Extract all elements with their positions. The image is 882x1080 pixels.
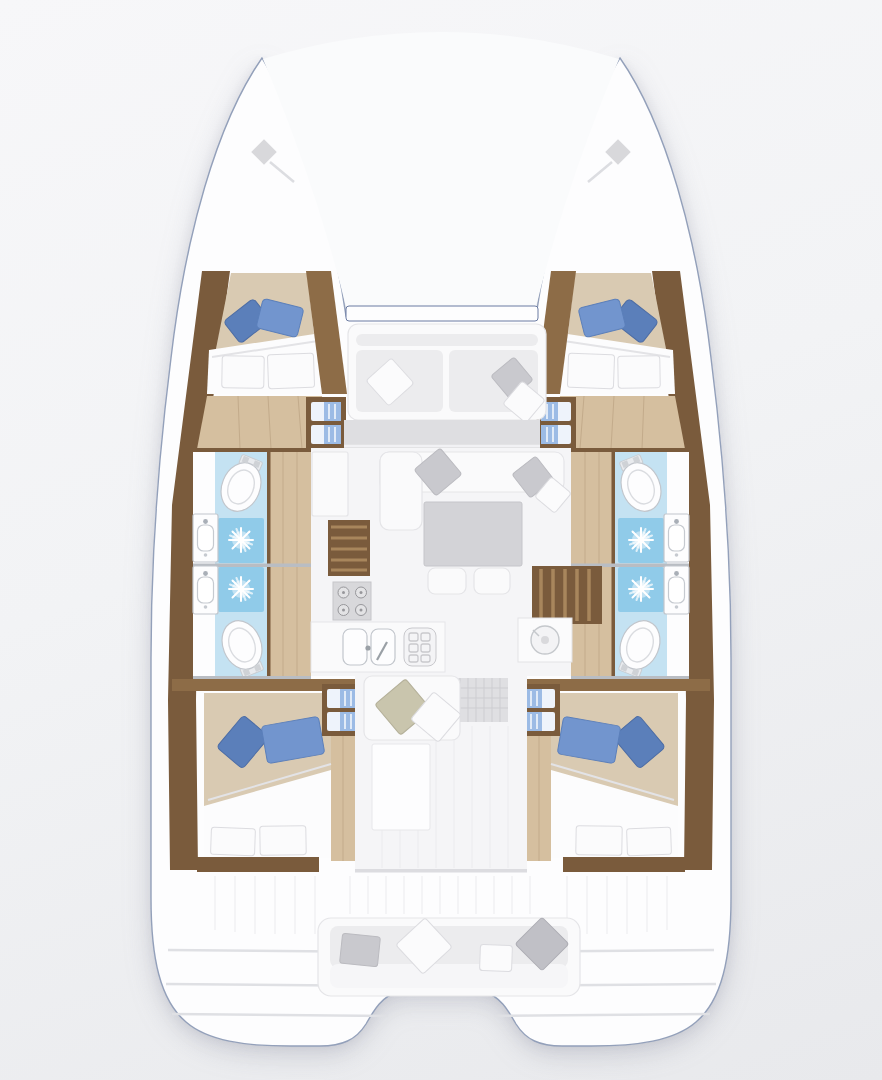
- pillow-gray: [340, 933, 381, 967]
- cabinet: [312, 452, 348, 516]
- bench-back: [356, 334, 538, 346]
- coffee-table: [424, 502, 522, 566]
- forward-cockpit: [348, 324, 546, 423]
- round-sink-island: [518, 618, 572, 662]
- floor-plan-canvas: [0, 0, 882, 1080]
- sofa-wing: [380, 452, 422, 530]
- dish-rack-icon: [404, 628, 436, 666]
- pillow-white: [480, 944, 513, 971]
- coachroof-band: [344, 420, 540, 449]
- forward-crossbeam: [346, 306, 538, 321]
- chaise-pad: [372, 744, 430, 830]
- stove-icon: [333, 582, 371, 620]
- companionway-steps-port: [328, 520, 370, 576]
- catamaran-floor-plan: [0, 0, 882, 1080]
- companionway-steps-starboard: [532, 566, 602, 624]
- bench-seat-front: [330, 964, 568, 988]
- stool: [428, 568, 466, 594]
- sliding-door-threshold: [355, 869, 527, 873]
- stool: [474, 568, 510, 594]
